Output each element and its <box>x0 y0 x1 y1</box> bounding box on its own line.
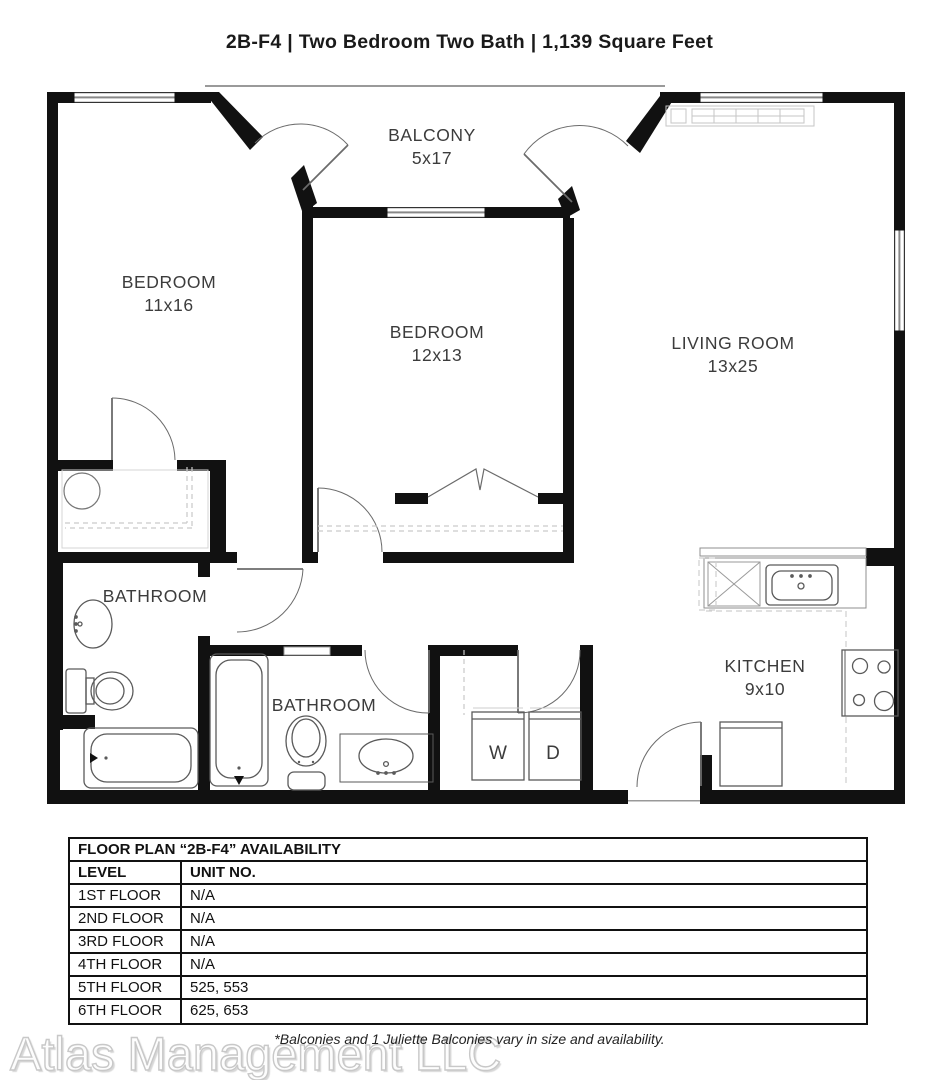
table-row: 2ND FLOOR N/A <box>70 908 866 931</box>
table-title: FLOOR PLAN “2B-F4” AVAILABILITY <box>70 839 866 860</box>
table-row: 1ST FLOOR N/A <box>70 885 866 908</box>
dryer-label: D <box>546 743 560 764</box>
bathtub <box>84 728 198 788</box>
bedroom1-label: BEDROOM <box>122 272 217 292</box>
balcony-dims: 5x17 <box>412 148 452 168</box>
bedroom2-dims: 12x13 <box>412 345 463 365</box>
kitchen-dims: 9x10 <box>745 679 785 699</box>
unit-cell: N/A <box>182 908 866 929</box>
balcony-label: BALCONY <box>388 125 476 145</box>
toilet <box>66 669 133 713</box>
fridge <box>720 722 782 786</box>
window-living-room-top <box>698 92 825 103</box>
wall-niche <box>284 647 330 655</box>
entry-door <box>637 722 701 787</box>
column-header-unit: UNIT NO. <box>182 862 866 883</box>
laundry-fixtures: W D <box>472 708 581 780</box>
unit-cell: 625, 653 <box>182 1000 866 1023</box>
laundry-door <box>518 650 580 713</box>
window-bedroom1 <box>72 92 177 103</box>
balcony-disclaimer: *Balconies and 1 Juliette Balconies vary… <box>0 1031 939 1047</box>
living-room-dims: 13x25 <box>708 356 759 376</box>
kitchen-label: KITCHEN <box>724 656 805 676</box>
vanity-sink <box>340 734 433 782</box>
balcony-railing <box>205 85 665 87</box>
table-title-row: FLOOR PLAN “2B-F4” AVAILABILITY <box>70 839 866 862</box>
bathtub <box>210 654 268 786</box>
bathroom2-label: BATHROOM <box>272 695 377 715</box>
table-row: 5TH FLOOR 525, 553 <box>70 977 866 1000</box>
bedroom1-dims: 11x16 <box>144 295 193 315</box>
unit-cell: N/A <box>182 885 866 906</box>
toilet <box>286 716 326 790</box>
window-bedroom2 <box>385 207 487 218</box>
column-header-level: LEVEL <box>70 862 182 883</box>
heater-grille <box>666 106 814 126</box>
unit-cell: N/A <box>182 954 866 975</box>
bedroom2-door <box>318 488 382 552</box>
availability-table: FLOOR PLAN “2B-F4” AVAILABILITY LEVEL UN… <box>68 837 868 1025</box>
bathroom2-fixtures <box>210 647 433 790</box>
window-living-room-right <box>894 228 905 333</box>
washer-label: W <box>489 743 507 764</box>
stove <box>842 650 898 716</box>
bathroom1-fixtures <box>66 600 198 788</box>
peninsula-counter <box>700 548 866 556</box>
bifold-closet-doors <box>428 469 538 497</box>
entry-threshold <box>628 800 700 802</box>
closet-door-bedroom1 <box>112 398 175 460</box>
table-row: 6TH FLOOR 625, 653 <box>70 1000 866 1023</box>
level-cell: 4TH FLOOR <box>70 954 182 975</box>
balcony-door-right <box>524 126 628 202</box>
level-cell: 6TH FLOOR <box>70 1000 182 1023</box>
unit-cell: 525, 553 <box>182 977 866 998</box>
table-header-row: LEVEL UNIT NO. <box>70 862 866 885</box>
living-room-label: LIVING ROOM <box>671 333 794 353</box>
level-cell: 2ND FLOOR <box>70 908 182 929</box>
bedroom1-door <box>237 569 303 632</box>
level-cell: 1ST FLOOR <box>70 885 182 906</box>
table-row: 3RD FLOOR N/A <box>70 931 866 954</box>
bathroom1-label: BATHROOM <box>103 586 208 606</box>
unit-cell: N/A <box>182 931 866 952</box>
flyer-page: 2B-F4 | Two Bedroom Two Bath | 1,139 Squ… <box>0 0 939 1080</box>
bedroom2-label: BEDROOM <box>390 322 485 342</box>
level-cell: 3RD FLOOR <box>70 931 182 952</box>
level-cell: 5TH FLOOR <box>70 977 182 998</box>
sink <box>74 600 112 648</box>
table-row: 4TH FLOOR N/A <box>70 954 866 977</box>
